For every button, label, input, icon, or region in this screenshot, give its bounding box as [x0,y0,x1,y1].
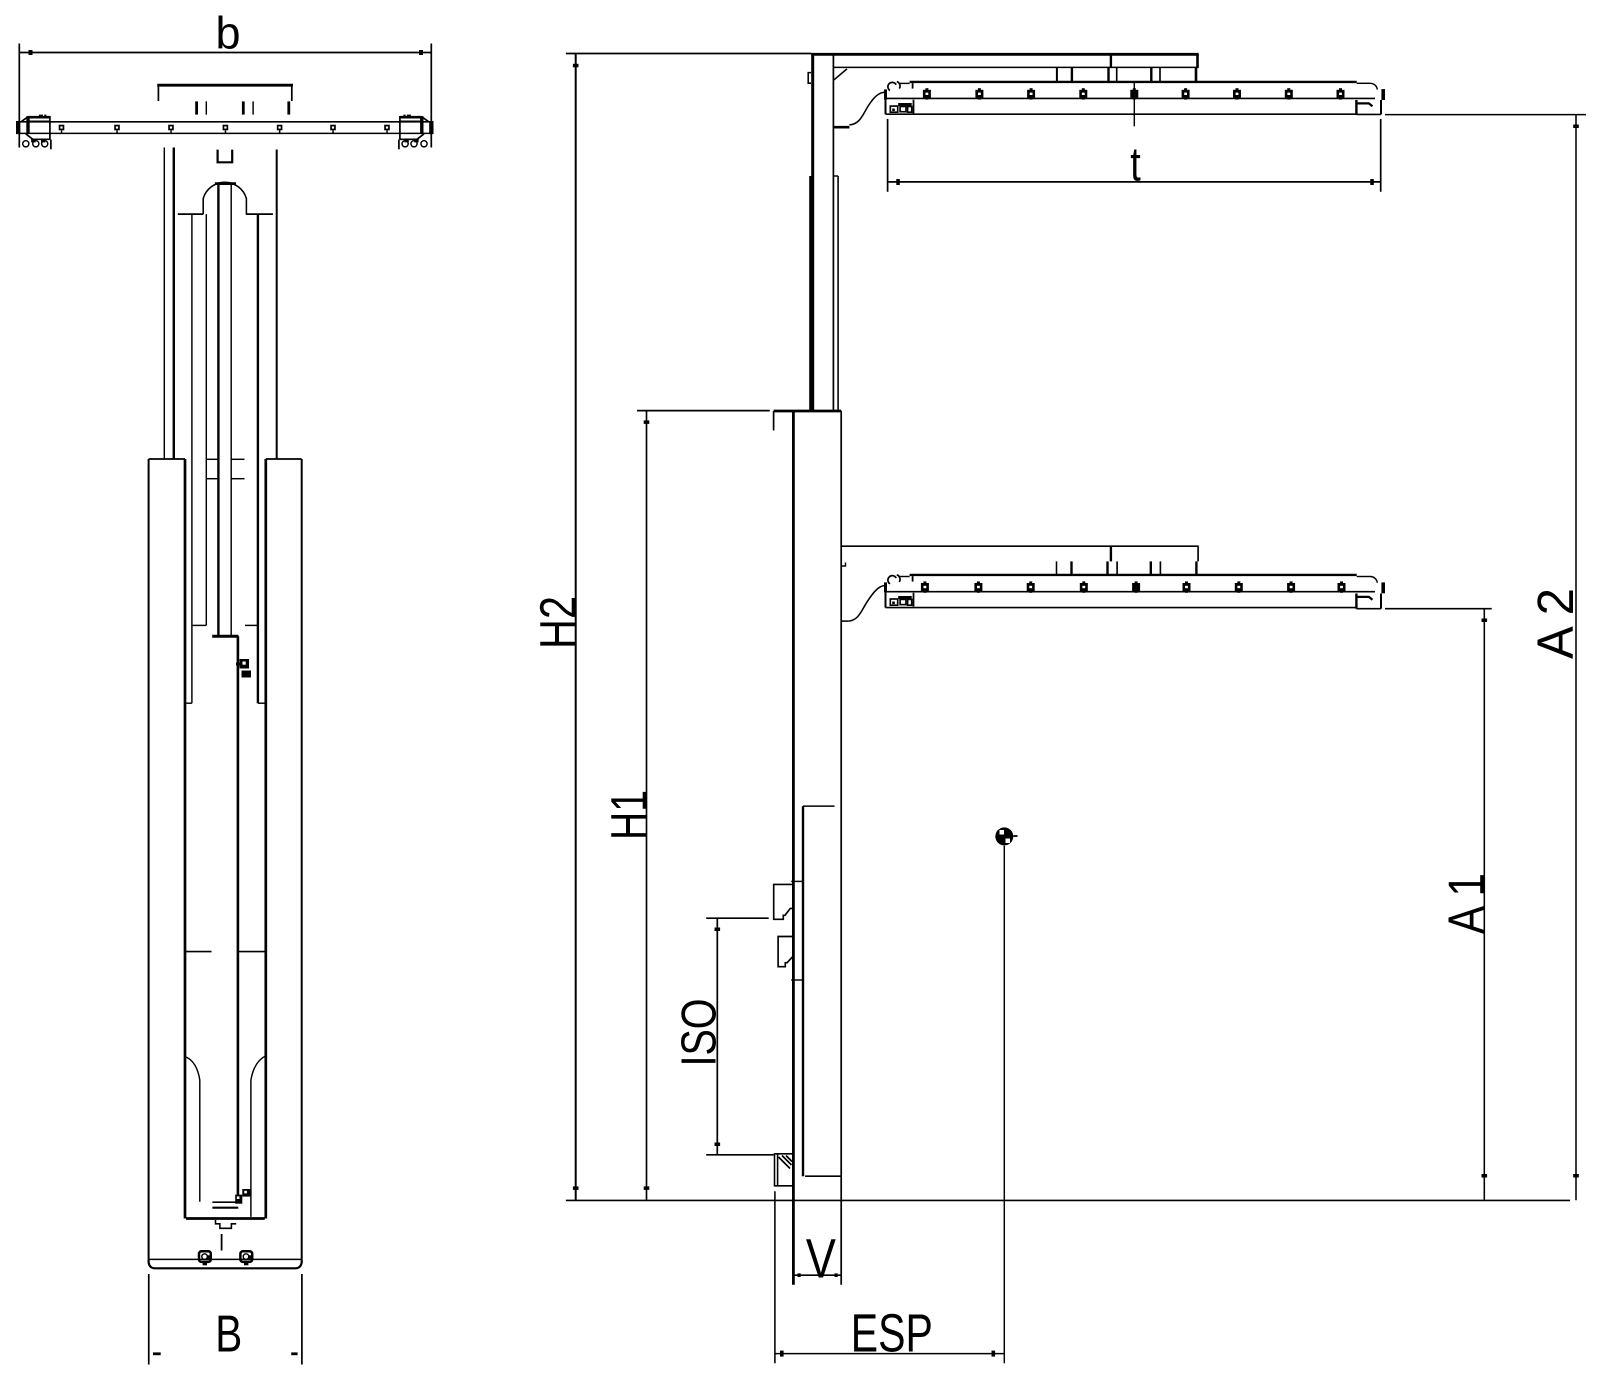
svg-text:A 1: A 1 [1438,873,1495,934]
svg-text:ISO: ISO [673,999,727,1067]
svg-text:b: b [215,8,240,59]
svg-text:ESP: ESP [851,1304,933,1364]
svg-text:t: t [1130,139,1141,192]
svg-text:A 2: A 2 [1527,588,1584,659]
svg-text:H2: H2 [530,596,587,649]
svg-text:B: B [215,1306,242,1364]
svg-text:V: V [806,1226,837,1289]
svg-text:H1: H1 [601,790,658,840]
